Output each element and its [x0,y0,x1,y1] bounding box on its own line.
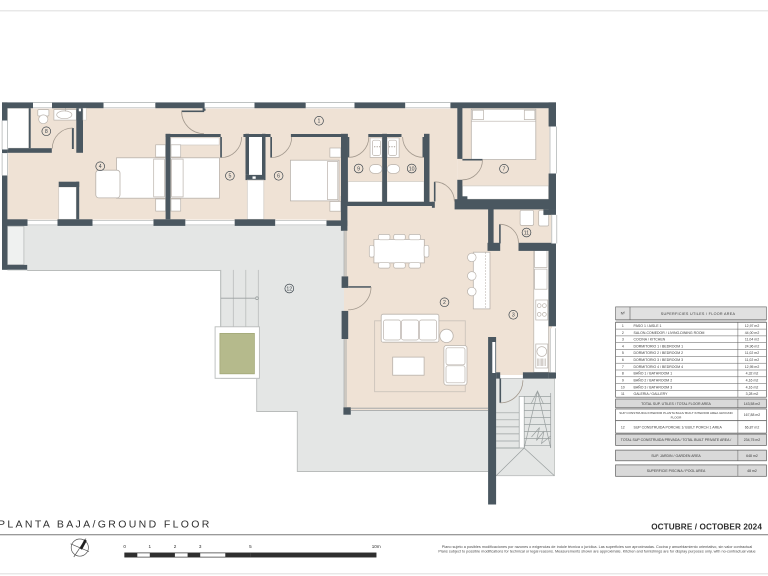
svg-text:1: 1 [318,119,321,125]
svg-text:PLANTA BAJA/GROUND FLOOR: PLANTA BAJA/GROUND FLOOR [0,519,212,531]
svg-text:1: 1 [149,544,152,549]
svg-text:4,16 m2: 4,16 m2 [746,379,759,383]
svg-text:3: 3 [622,338,624,342]
svg-text:143,58 m2: 143,58 m2 [744,402,761,406]
svg-text:Plans subject to possible modi: Plans subject to possible modifications … [438,550,755,554]
svg-text:234,75 m2: 234,75 m2 [744,438,761,442]
svg-text:BAÑO 2 / BATHROOM 2: BAÑO 2 / BATHROOM 2 [634,378,673,383]
svg-text:10: 10 [621,385,625,389]
svg-text:3: 3 [512,313,515,319]
svg-text:8: 8 [45,129,48,135]
svg-text:Plano sujeto a posibles modifi: Plano sujeto a posibles modificaciones p… [442,545,753,549]
svg-text:6: 6 [277,174,280,180]
svg-text:DORMITORIO 3 / BEDROOM 3: DORMITORIO 3 / BEDROOM 3 [634,358,684,362]
svg-text:1: 1 [622,324,624,328]
svg-text:BAÑO 1 / BATHROOM 1: BAÑO 1 / BATHROOM 1 [634,371,673,376]
svg-text:11: 11 [621,392,625,396]
svg-text:3: 3 [199,544,202,549]
svg-text:SUPERFICIE PISCINA / POOL AREA: SUPERFICIE PISCINA / POOL AREA [647,469,706,473]
svg-text:10: 10 [409,166,415,172]
svg-text:5: 5 [622,351,624,355]
svg-text:11,02 m2: 11,02 m2 [745,351,759,355]
svg-text:PASO 1 / AISLE 1: PASO 1 / AISLE 1 [634,324,662,328]
svg-text:9: 9 [357,166,360,172]
svg-text:GALERIA / GALLERY: GALERIA / GALLERY [634,392,669,396]
svg-text:FLOOR: FLOOR [671,416,682,420]
svg-text:167,88 m2: 167,88 m2 [744,413,761,417]
svg-text:5: 5 [249,544,252,549]
svg-text:DORMITORIO 1 / BEDROOM 1: DORMITORIO 1 / BEDROOM 1 [634,344,684,348]
svg-text:TOTAL SUP. UTILES / TOTAL FLOO: TOTAL SUP. UTILES / TOTAL FLOOR AREA [641,402,711,406]
svg-text:7: 7 [622,365,624,369]
svg-text:648 m2: 648 m2 [746,454,758,458]
svg-text:SUP CONSTRUIDA PORCHE 1/ BUILT: SUP CONSTRUIDA PORCHE 1/ BUILT PORCH 1 A… [634,425,723,429]
svg-text:66,87 m2: 66,87 m2 [745,425,760,429]
svg-text:12,95 m2: 12,95 m2 [745,365,760,369]
svg-text:5: 5 [228,174,231,180]
svg-text:11: 11 [524,230,529,236]
svg-text:SUP. JARDIN / GARDEN AREA: SUP. JARDIN / GARDEN AREA [651,454,701,458]
svg-text:12: 12 [621,425,625,429]
svg-text:4: 4 [622,344,624,348]
svg-text:COCINA / KITCHEN: COCINA / KITCHEN [634,338,666,342]
svg-text:3,28 m2: 3,28 m2 [746,392,759,396]
svg-text:SALON-COMEDOR / LIVING-DINING: SALON-COMEDOR / LIVING-DINING ROOM [634,331,705,335]
svg-text:24,96 m2: 24,96 m2 [745,344,760,348]
svg-text:6: 6 [622,358,624,362]
svg-text:8: 8 [622,372,624,376]
svg-text:4,16 m2: 4,16 m2 [746,385,759,389]
svg-text:Nº: Nº [621,311,626,316]
svg-text:48 m2: 48 m2 [747,469,757,473]
svg-text:4: 4 [99,164,102,170]
svg-text:DORMITORIO 2 / BEDROOM 2: DORMITORIO 2 / BEDROOM 2 [634,351,684,355]
svg-text:11,02 m2: 11,02 m2 [745,358,759,362]
svg-text:7: 7 [503,167,506,173]
svg-text:10m: 10m [372,544,381,549]
svg-text:TOTAL SUP CONSTRUIDA PRIVADA /: TOTAL SUP CONSTRUIDA PRIVADA / TOTAL BUI… [621,438,732,442]
svg-text:BAÑO 3 / BATHROOM 3: BAÑO 3 / BATHROOM 3 [634,384,673,389]
svg-text:SUPERFICIES UTILES / FLOOR ARE: SUPERFICIES UTILES / FLOOR AREA [661,312,736,316]
svg-text:12: 12 [286,286,292,292]
svg-text:4,32 m2: 4,32 m2 [746,372,759,376]
svg-text:DORMITORIO 4 / BEDROOM 4: DORMITORIO 4 / BEDROOM 4 [634,365,684,369]
svg-text:2: 2 [174,544,177,549]
svg-text:2: 2 [443,300,446,306]
svg-text:2: 2 [622,331,624,335]
svg-text:OCTUBRE / OCTOBER 2024: OCTUBRE / OCTOBER 2024 [651,523,762,532]
svg-text:9: 9 [622,379,624,383]
svg-text:12,97 m2: 12,97 m2 [745,324,760,328]
svg-text:0: 0 [123,544,126,549]
svg-text:44,00 m2: 44,00 m2 [745,331,760,335]
svg-text:11,04 m2: 11,04 m2 [745,338,759,342]
